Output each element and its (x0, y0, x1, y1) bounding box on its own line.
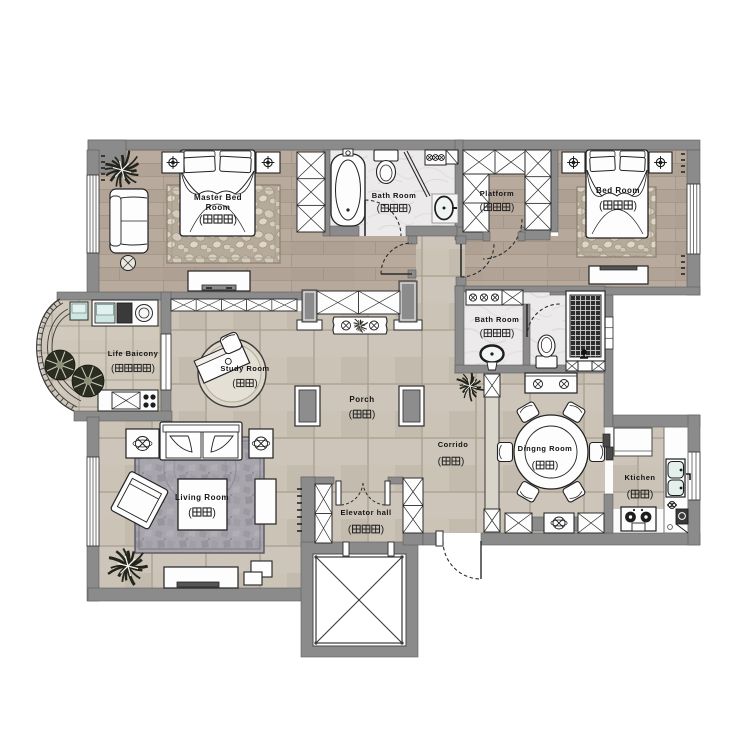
svg-text:): ) (212, 507, 216, 519)
svg-text:): ) (152, 363, 155, 374)
svg-text:): ) (254, 378, 257, 389)
svg-text:): ) (372, 409, 376, 421)
svg-text:Bath Room: Bath Room (475, 315, 520, 324)
svg-text:): ) (633, 200, 637, 212)
svg-text:): ) (650, 489, 654, 501)
svg-text:Porch: Porch (349, 395, 374, 404)
svg-text:Room: Room (206, 203, 231, 212)
svg-text:Dingng Room: Dingng Room (518, 444, 573, 453)
svg-text:(: ( (599, 200, 603, 212)
svg-text:Study Room: Study Room (220, 364, 269, 373)
svg-text:Ktichen: Ktichen (624, 473, 655, 482)
svg-text:): ) (511, 328, 514, 339)
svg-text:Living Room: Living Room (175, 493, 229, 502)
svg-text:): ) (408, 203, 411, 214)
svg-text:(: ( (199, 214, 203, 226)
svg-text:(: ( (349, 409, 353, 421)
svg-text:): ) (461, 456, 465, 468)
svg-text:Bed Room: Bed Room (596, 186, 640, 195)
svg-text:(: ( (627, 489, 631, 501)
svg-text:Corrido: Corrido (438, 440, 469, 449)
svg-text:Platform: Platform (480, 189, 514, 198)
svg-text:(: ( (188, 507, 192, 519)
svg-text:): ) (381, 524, 385, 536)
svg-text:): ) (555, 460, 559, 472)
svg-text:): ) (233, 214, 237, 226)
svg-text:Elevator hall: Elevator hall (340, 508, 391, 517)
svg-text:Life Baicony: Life Baicony (108, 349, 159, 358)
svg-text:): ) (511, 202, 514, 213)
svg-text:Master Bed: Master Bed (194, 193, 242, 202)
svg-text:Bath Room: Bath Room (372, 191, 417, 200)
svg-text:(: ( (348, 524, 352, 536)
svg-text:(: ( (532, 460, 536, 472)
svg-text:(: ( (438, 456, 442, 468)
